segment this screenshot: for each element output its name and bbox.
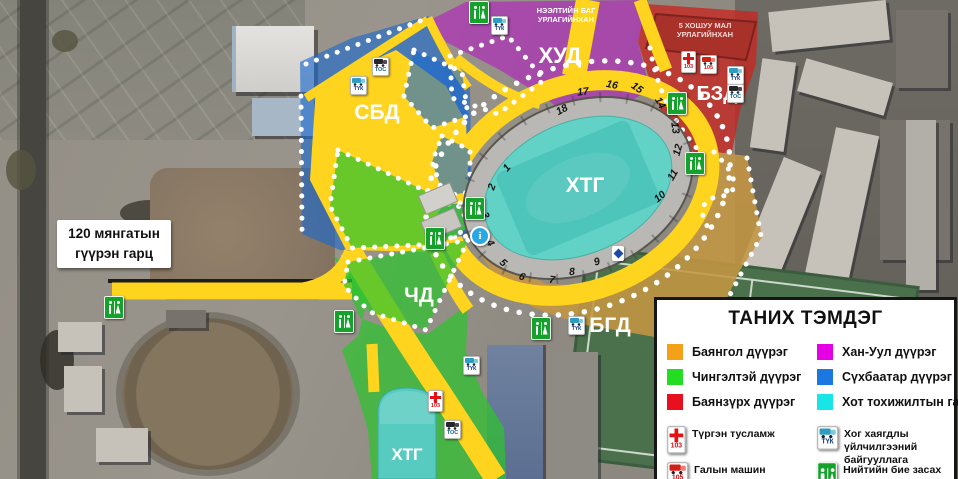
ambulance-103-icon: 103	[681, 51, 696, 73]
tuk-label: ТҮК	[467, 366, 477, 373]
waste-truck-tuk-icon: ТҮК	[568, 316, 585, 335]
label-khud: ХУД	[539, 43, 582, 68]
note-opening-team: НЭЭЛТИЙН БАГ	[537, 6, 596, 15]
gate-number: 8	[569, 266, 576, 278]
label-sbd: СБД	[354, 101, 399, 124]
public-toilet-wc-icon	[334, 310, 354, 333]
district-label: Баянгол дүүрэг	[692, 345, 788, 359]
waste-truck-tuk-icon: ТҮК	[463, 356, 480, 375]
district-label: Баянзүрх дүүрэг	[692, 395, 795, 409]
tuk-label: ТҮК	[572, 326, 582, 333]
tos-label: ТОС	[375, 67, 386, 74]
legend-services: 103 Түргэн тусламж 105 Галын машин ТҮК Х…	[667, 426, 944, 479]
note-khoshuu: УРЛАГИЙНХАН	[677, 30, 733, 39]
ambulance-label: 103	[684, 64, 693, 71]
public-toilet-wc-icon	[104, 296, 124, 319]
note-khoshuu: 5 ХОШУУ МАЛ	[679, 21, 732, 30]
fire-label: 105	[704, 65, 713, 72]
waste-truck-tuk-icon: ТҮК	[727, 66, 744, 85]
gate-number: 13	[668, 121, 682, 134]
legend-title: ТАНИХ ТЭМДЭГ	[667, 308, 944, 330]
tuk-label: ТҮК	[822, 439, 834, 447]
legend-district: Сүхбаатар дүүрэг	[817, 365, 958, 389]
legend: ТАНИХ ТЭМДЭГ Баянгол дүүрэг Чингэлтэй дү…	[654, 297, 957, 479]
waste-truck-tuk-icon: ТҮК	[817, 426, 838, 449]
waste-truck-tuk-icon: ТҮК	[350, 76, 367, 95]
tos-truck-icon: ТОС	[727, 84, 744, 103]
public-toilet-wc-icon	[685, 152, 705, 175]
ambulance-103-icon: 103	[428, 390, 443, 412]
label-stadium: ХТГ	[566, 174, 605, 197]
district-label: Хот тохижилтын газар	[842, 395, 958, 409]
legend-districts: Баянгол дүүрэг Чингэлтэй дүүрэг Баянзүрх…	[667, 340, 944, 414]
legend-service: 103 Түргэн тусламж	[667, 426, 817, 460]
district-label: Сүхбаатар дүүрэг	[842, 370, 952, 384]
tuk-label: ТҮК	[731, 76, 741, 83]
public-toilet-wc-icon	[817, 462, 837, 479]
road-stub	[372, 344, 374, 392]
color-swatch	[817, 394, 833, 410]
ambulance-label: 103	[671, 442, 682, 450]
tuk-label: ТҮК	[354, 86, 364, 93]
color-swatch	[667, 394, 683, 410]
label-bgd: БГД	[589, 314, 630, 337]
legend-district: Баянзүрх дүүрэг	[667, 390, 817, 414]
legend-district: Чингэлтэй дүүрэг	[667, 365, 817, 389]
public-toilet-wc-icon	[465, 197, 485, 220]
info-icon: i	[470, 226, 490, 246]
fire-truck-105-icon: 105	[667, 462, 688, 479]
tos-truck-icon: ТОС	[372, 57, 389, 76]
public-toilet-wc-icon	[531, 317, 551, 340]
bridge-note-line2: гүүрэн гарц	[57, 244, 171, 264]
legend-district: Хан-Уул дүүрэг	[817, 340, 958, 364]
tos-label: ТОС	[730, 94, 741, 101]
waste-truck-tuk-icon: ТҮК	[491, 16, 508, 35]
fire-truck-105-icon: 105	[700, 55, 717, 74]
public-toilet-wc-icon	[469, 1, 489, 24]
district-label: Чингэлтэй дүүрэг	[692, 370, 801, 384]
label-south-stadium: ХТГ	[391, 445, 423, 464]
legend-service: 105 Галын машин	[667, 462, 817, 479]
color-swatch	[667, 344, 683, 360]
public-toilet-wc-icon	[667, 92, 687, 115]
color-swatch	[817, 369, 833, 385]
note-opening-team: УРЛАГИЙНХАН	[538, 15, 594, 24]
service-label: Түргэн тусламж	[692, 426, 775, 441]
tos-truck-icon: ТОС	[444, 420, 461, 439]
legend-service: ТҮК Хог хаягдлы үйлчилгээний байгууллага	[817, 426, 944, 460]
color-swatch	[667, 369, 683, 385]
ambulance-label: 103	[431, 403, 440, 410]
stadium-logo-badge	[612, 246, 624, 261]
color-swatch	[817, 344, 833, 360]
legend-district: Баянгол дүүрэг	[667, 340, 817, 364]
service-label: Нийтийн бие засах газар	[843, 462, 944, 479]
public-toilet-wc-icon	[425, 227, 445, 250]
district-label: Хан-Уул дүүрэг	[842, 345, 936, 359]
info-glyph: i	[478, 230, 481, 242]
bridge-note-line1: 120 мянгатын	[57, 224, 171, 244]
tos-label: ТОС	[447, 430, 458, 437]
bridge-note: 120 мянгатын гүүрэн гарц	[57, 220, 171, 268]
service-label: Галын машин	[694, 462, 766, 477]
fire-label: 105	[672, 475, 683, 479]
legend-service: Нийтийн бие засах газар	[817, 462, 944, 479]
stadium-area-map: 1 2 3 4 5 6 7 8 9 10 11 12 13 14 15 16 1…	[0, 0, 958, 479]
label-chd: ЧД	[404, 284, 434, 307]
tuk-label: ТҮК	[495, 26, 505, 33]
ambulance-103-icon: 103	[667, 426, 686, 453]
legend-district: Хот тохижилтын газар	[817, 390, 958, 414]
